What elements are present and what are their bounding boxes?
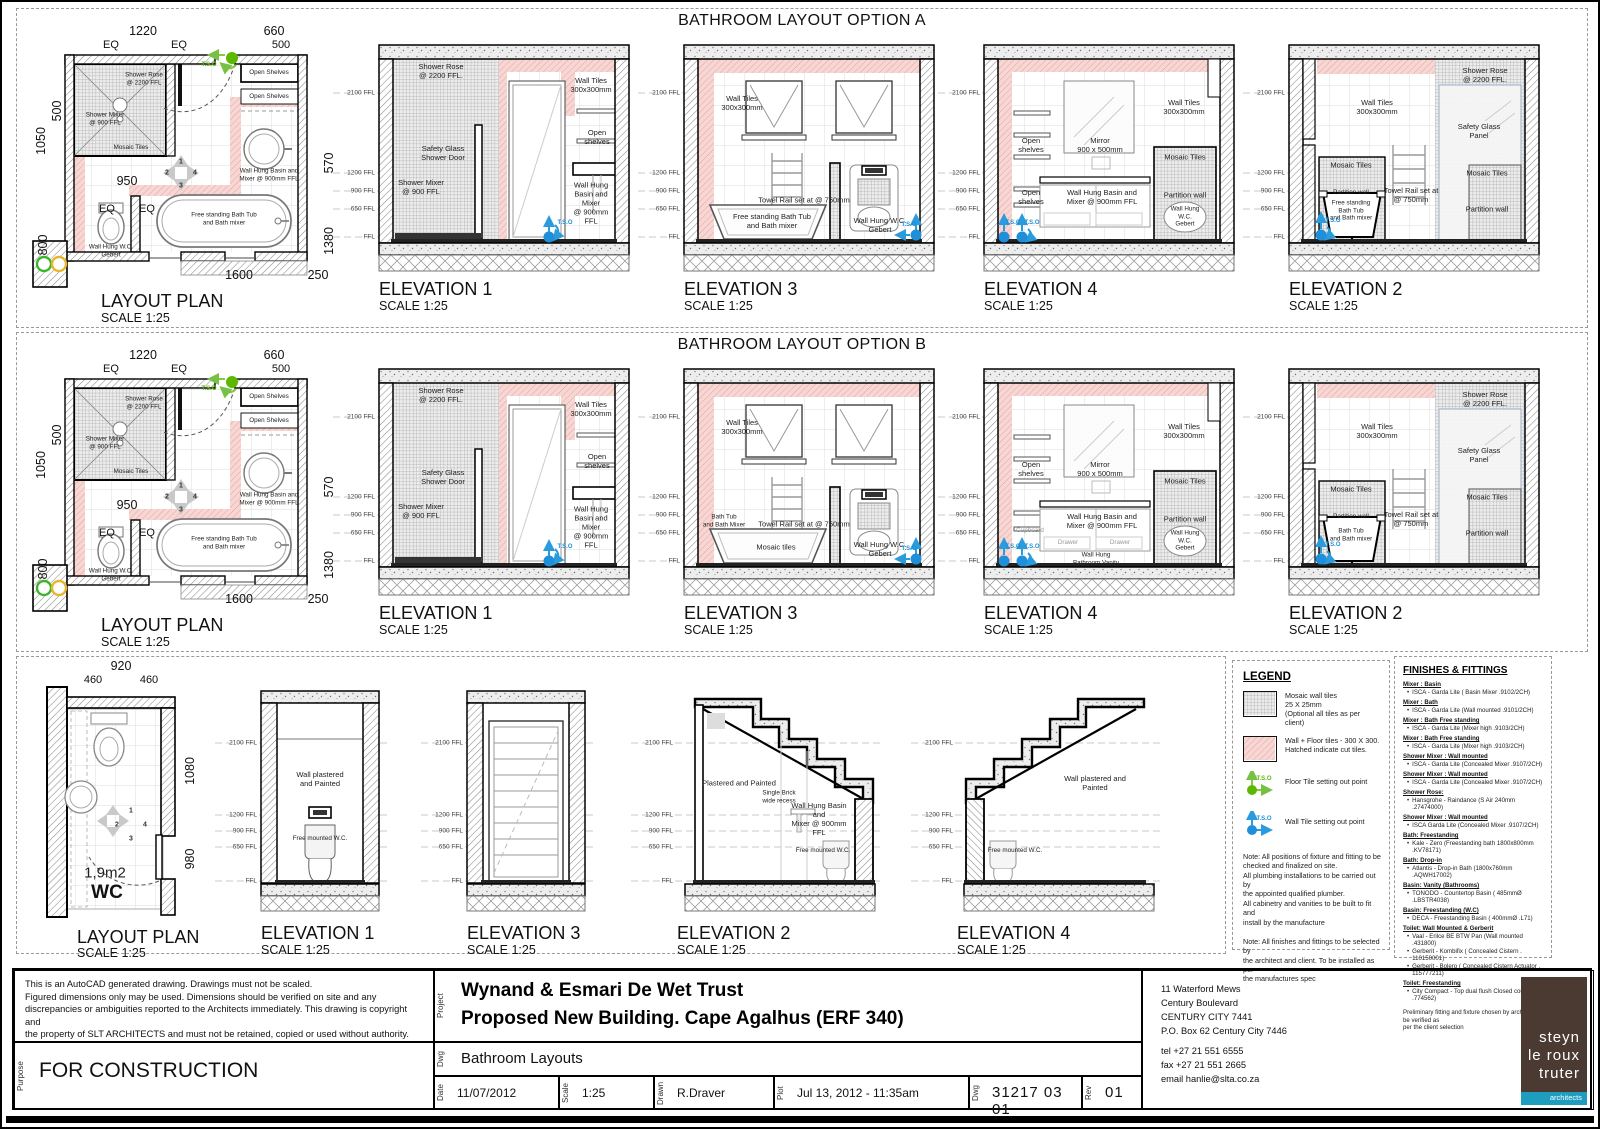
level-label: 900 FFL xyxy=(636,188,680,195)
dwg-title-value: Bathroom Layouts xyxy=(435,1043,1141,1067)
view-caption: ELEVATION 4 xyxy=(957,923,1070,944)
dim: 800 xyxy=(36,235,50,256)
finishes-item-heading: Mixer : Bath Free standing xyxy=(1403,735,1545,742)
finishes-item-line: •Gerberit - Kombifix ( Concealed Cistern… xyxy=(1407,948,1547,962)
level-label: 2100 FFL xyxy=(213,740,257,747)
dim: 980 xyxy=(183,849,197,870)
view-scale: SCALE 1:25 xyxy=(77,946,146,960)
tso-label: T.S.O xyxy=(1325,218,1340,224)
finishes-item-line: •Kale - Zero (Freestanding bath 1800x800… xyxy=(1407,840,1547,854)
level-label: 2100 FFL xyxy=(636,90,680,97)
level-label: 650 FFL xyxy=(909,844,953,851)
date-label: Date xyxy=(436,1079,449,1107)
level-label: 1200 FFL xyxy=(1241,494,1285,501)
finishes-item-heading: Basin: Freestanding (W.C) xyxy=(1403,907,1545,914)
purpose-label: Purpose xyxy=(16,1045,29,1107)
dim: 1380 xyxy=(322,227,336,255)
dim: 250 xyxy=(308,592,329,606)
tso-label: T.S.O xyxy=(557,544,572,550)
address-cell: 11 Waterford Mews Century Boulevard CENT… xyxy=(1142,970,1594,1110)
legend-item-text: Wall + Floor tiles - 300 X 300. Hatched … xyxy=(1285,736,1379,754)
tso-label: T.S.O xyxy=(557,220,572,226)
compass-number: 4 xyxy=(193,170,197,177)
level-label: 1200 FFL xyxy=(213,812,257,819)
wc-plan-drawing xyxy=(35,685,235,921)
level-label: FFL xyxy=(936,558,980,565)
rev-cell: Rev 01 xyxy=(1082,1076,1142,1110)
level-label: 900 FFL xyxy=(1241,512,1285,519)
compass-number: 2 xyxy=(165,494,169,501)
view-scale: SCALE 1:25 xyxy=(684,299,753,313)
level-label: 1200 FFL xyxy=(636,494,680,501)
dim: 660 xyxy=(264,24,285,38)
level-label: FFL xyxy=(1241,558,1285,565)
dim: 460 xyxy=(140,674,158,686)
compass-number: 3 xyxy=(129,836,133,843)
dim: 500 xyxy=(50,425,64,446)
logo-line-2: le roux xyxy=(1528,1047,1580,1064)
finishes-item-text: ISCA - Garda Lite (Mixer high .9103/2CH) xyxy=(1412,743,1524,750)
level-label: FFL xyxy=(629,878,673,885)
option-a-panel: BATHROOM LAYOUT OPTION A xyxy=(16,8,1588,328)
wc-name-label: WC xyxy=(91,882,123,904)
dwg-title-cell: Dwg Bathroom Layouts xyxy=(434,1042,1142,1076)
finishes-item-text: DECA - Freestanding Basin ( 400mmØ .L71) xyxy=(1412,915,1533,922)
elevation-3-view: 2100 FFL 1200 FFL 900 FFL 650 FFL FFL Wa… xyxy=(684,369,934,595)
wc-panel: 920 460 460 1080 980 1 2 3 4 1,9m2 WC LA… xyxy=(16,656,1226,954)
tso-label: T.S.O xyxy=(201,62,216,68)
level-label: 900 FFL xyxy=(629,828,673,835)
legend-title: LEGEND xyxy=(1243,671,1389,683)
dim: 920 xyxy=(111,659,132,673)
finishes-item-text: Gerberit - Kombifix ( Concealed Cistern … xyxy=(1412,948,1547,962)
level-label: FFL xyxy=(419,878,463,885)
elevation-4-drawing xyxy=(984,369,1234,595)
level-label: 650 FFL xyxy=(629,844,673,851)
compass-number: 2 xyxy=(165,170,169,177)
finishes-item-heading: Bath: Freestanding xyxy=(1403,832,1545,839)
finishes-item-line: •TONODO - Countertop Basin ( 485mmØ .LBS… xyxy=(1407,890,1547,904)
finishes-item-heading: Shower Mixer : Wall mounted xyxy=(1403,814,1545,821)
view-scale: SCALE 1:25 xyxy=(1289,299,1358,313)
finishes-item-heading: Shower Mixer : Wall mounted xyxy=(1403,753,1545,760)
level-label: 900 FFL xyxy=(936,512,980,519)
view-scale: SCALE 1:25 xyxy=(1289,623,1358,637)
tso-label: T.S.O xyxy=(1024,544,1039,550)
elevation-3-drawing xyxy=(684,369,934,595)
title-block: This is an AutoCAD generated drawing. Dr… xyxy=(12,968,1592,1110)
view-caption: ELEVATION 2 xyxy=(677,923,790,944)
level-label: 900 FFL xyxy=(331,188,375,195)
legend-item-wall-tso: T.S.O Wall Tile setting out point xyxy=(1243,811,1381,842)
finishes-item-heading: Toilet: Wall Mounted & Gerberit xyxy=(1403,925,1545,932)
logo-line-1: steyn xyxy=(1539,1029,1580,1046)
level-label: FFL xyxy=(213,878,257,885)
level-label: 650 FFL xyxy=(636,206,680,213)
view-caption: ELEVATION 4 xyxy=(984,603,1097,624)
view-scale: SCALE 1:25 xyxy=(984,299,1053,313)
wc-elevation-3-view: 2100 FFL 1200 FFL 900 FFL 650 FFL FFL EL… xyxy=(467,691,585,919)
level-label: 900 FFL xyxy=(936,188,980,195)
wc-layout-plan-view: 920 460 460 1080 980 1 2 3 4 1,9m2 WC LA… xyxy=(35,661,245,953)
view-scale: SCALE 1:25 xyxy=(379,299,448,313)
elevation-1-view: 2100 FFL 1200 FFL 900 FFL 650 FFL FFL Sh… xyxy=(379,45,629,271)
level-label: 900 FFL xyxy=(213,828,257,835)
tile-swatch-icon xyxy=(1243,736,1277,762)
level-label: 1200 FFL xyxy=(909,812,953,819)
wc-area-label: 1,9m2 xyxy=(84,865,126,882)
finishes-item-line: •Atlantis - Drop-in Bath (1800x760mm .AQ… xyxy=(1407,865,1547,879)
level-label: 1200 FFL xyxy=(1241,170,1285,177)
finishes-item-heading: Shower Rose: xyxy=(1403,789,1545,796)
drawn-label: Drawn xyxy=(656,1079,669,1107)
legend-item-floor-tso: T.S.O Floor Tile setting out point xyxy=(1243,771,1381,802)
dim: 660 xyxy=(264,348,285,362)
finishes-item-line: •ISCA - Garda Lite (Mixer high .9103/2CH… xyxy=(1407,725,1547,732)
finishes-item-heading: Mixer : Basin xyxy=(1403,681,1545,688)
view-scale: SCALE 1:25 xyxy=(101,311,170,325)
level-label: 2100 FFL xyxy=(936,90,980,97)
dwgno-cell: Dwg 31217 03 01 xyxy=(969,1076,1082,1110)
finishes-item-line: •ISCA - Garda Lite (Concealed Mixer .910… xyxy=(1407,779,1547,786)
logo-line-3: truter xyxy=(1539,1065,1580,1082)
view-caption: ELEVATION 1 xyxy=(261,923,374,944)
legend-item-text: Wall Tile setting out point xyxy=(1285,817,1365,826)
level-label: 2100 FFL xyxy=(636,414,680,421)
layout-plan-drawing xyxy=(31,45,341,295)
view-caption: LAYOUT PLAN xyxy=(101,291,223,312)
elevation-3-view: 2100 FFL 1200 FFL 900 FFL 650 FFL FFL Wa… xyxy=(684,45,934,271)
logo-architects-bar: architects xyxy=(1521,1092,1587,1105)
dim: 1380 xyxy=(322,551,336,579)
level-label: FFL xyxy=(331,234,375,241)
finishes-item-heading: Mixer : Bath Free standing xyxy=(1403,717,1545,724)
view-scale: SCALE 1:25 xyxy=(957,943,1026,957)
view-caption: ELEVATION 1 xyxy=(379,279,492,300)
dwgno-label: Dwg xyxy=(971,1079,984,1107)
purpose-value: FOR CONSTRUCTION xyxy=(15,1043,433,1083)
dim: EQ xyxy=(103,39,119,51)
level-label: FFL xyxy=(331,558,375,565)
level-label: 900 FFL xyxy=(419,828,463,835)
scale-label: Scale xyxy=(561,1079,574,1107)
legend-item-tiles: Wall + Floor tiles - 300 X 300. Hatched … xyxy=(1243,736,1381,762)
level-label: 1200 FFL xyxy=(936,170,980,177)
drawn-cell: Drawn R.Draver xyxy=(654,1076,774,1110)
level-label: 650 FFL xyxy=(936,206,980,213)
compass-number: 1 xyxy=(179,483,183,490)
compass-number: 4 xyxy=(193,494,197,501)
elevation-2-view: 2100 FFL 1200 FFL 900 FFL 650 FFL FFL Sh… xyxy=(1289,45,1539,271)
finishes-item-heading: Basin: Vanity (Bathrooms) xyxy=(1403,882,1545,889)
option-section: BATHROOM LAYOUT OPTION A xyxy=(17,9,1587,327)
dim: EQ xyxy=(171,39,187,51)
level-label: 650 FFL xyxy=(936,530,980,537)
tso-label: T.S.O xyxy=(1325,542,1340,548)
drawn-value: R.Draver xyxy=(655,1077,773,1100)
layout-plan-view: 1220 EQ EQ 660 500 1050 500 800 570 1380… xyxy=(31,347,341,651)
plot-cell: Plot Jul 13, 2012 - 11:35am xyxy=(774,1076,969,1110)
finishes-item-text: Hansgrohe - Raindance (S Air 240mm .2747… xyxy=(1412,797,1547,811)
level-label: 900 FFL xyxy=(636,512,680,519)
view-scale: SCALE 1:25 xyxy=(684,623,753,637)
wc-elevation-3-drawing xyxy=(467,691,585,915)
level-label: FFL xyxy=(636,558,680,565)
dim: 800 xyxy=(36,559,50,580)
level-label: 2100 FFL xyxy=(331,414,375,421)
architect-logo: steyn le roux truter architects xyxy=(1521,977,1587,1105)
compass-number: 4 xyxy=(143,822,147,829)
dim: EQ xyxy=(171,363,187,375)
finishes-item-heading: Bath: Drop-in xyxy=(1403,857,1545,864)
view-caption: LAYOUT PLAN xyxy=(77,927,199,948)
legend-item-mosaic: Mosaic wall tiles 25 X 25mm (Optional al… xyxy=(1243,691,1381,727)
level-label: 650 FFL xyxy=(1241,530,1285,537)
view-caption: ELEVATION 2 xyxy=(1289,279,1402,300)
elevation-2-view: 2100 FFL 1200 FFL 900 FFL 650 FFL FFL Sh… xyxy=(1289,369,1539,595)
compass-number: 2 xyxy=(115,822,119,829)
drawing-sheet: BATHROOM LAYOUT OPTION A xyxy=(0,0,1600,1129)
project-label: Project xyxy=(436,973,449,1039)
wc-elevation-4-drawing xyxy=(957,691,1162,915)
level-label: 650 FFL xyxy=(331,206,375,213)
project-line-1: Wynand & Esmari De Wet Trust xyxy=(435,971,1141,1005)
tso-label: T.S.O xyxy=(1256,776,1271,782)
finishes-panel: FINISHES & FITTINGS Mixer : Basin•ISCA -… xyxy=(1394,656,1552,958)
compass-number: 1 xyxy=(129,808,133,815)
elevation-1-drawing xyxy=(379,45,629,271)
level-label: 900 FFL xyxy=(331,512,375,519)
dim: 1600 xyxy=(225,592,253,606)
tso-label: T.S.O xyxy=(1005,544,1020,550)
rev-label: Rev xyxy=(1084,1079,1097,1107)
dim: 1050 xyxy=(34,127,48,155)
dim: 1080 xyxy=(183,757,197,785)
purpose-cell: Purpose FOR CONSTRUCTION xyxy=(14,1042,434,1110)
dim: 1050 xyxy=(34,451,48,479)
view-scale: SCALE 1:25 xyxy=(984,623,1053,637)
dim: EQ xyxy=(99,203,115,215)
layout-plan-view: 1220 EQ EQ 660 500 1050 500 800 570 1380… xyxy=(31,23,341,327)
dim: 500 xyxy=(50,101,64,122)
project-cell: Project Wynand & Esmari De Wet Trust Pro… xyxy=(434,970,1142,1042)
view-caption: LAYOUT PLAN xyxy=(101,615,223,636)
view-scale: SCALE 1:25 xyxy=(379,623,448,637)
view-caption: ELEVATION 1 xyxy=(379,603,492,624)
finishes-item-text: ISCA Garda Lite (Concealed Mixer .9107/2… xyxy=(1412,822,1538,829)
mosaic-swatch-icon xyxy=(1243,691,1277,717)
dim: 1220 xyxy=(129,24,157,38)
dwgno-value: 31217 03 01 xyxy=(970,1077,1081,1118)
level-label: 2100 FFL xyxy=(629,740,673,747)
level-label: 900 FFL xyxy=(909,828,953,835)
option-section: BATHROOM LAYOUT OPTION B xyxy=(17,333,1587,651)
level-label: 1200 FFL xyxy=(331,170,375,177)
level-label: FFL xyxy=(1241,234,1285,241)
scale-cell: Scale 1:25 xyxy=(559,1076,654,1110)
view-scale: SCALE 1:25 xyxy=(101,635,170,649)
plot-label: Plot xyxy=(776,1079,789,1107)
elevation-2-drawing xyxy=(1289,369,1539,595)
date-value: 11/07/2012 xyxy=(435,1077,558,1100)
tso-label: T.S.O xyxy=(1024,220,1039,226)
compass-number: 3 xyxy=(179,183,183,190)
finishes-item-line: •ISCA - Garda Lite (Wall mounted .9101/2… xyxy=(1407,707,1547,714)
level-label: 2100 FFL xyxy=(1241,90,1285,97)
finishes-item-heading: Mixer : Bath xyxy=(1403,699,1545,706)
tso-label: T.S.O xyxy=(901,222,916,228)
level-label: 650 FFL xyxy=(331,530,375,537)
dim: 1600 xyxy=(225,268,253,282)
dim: 250 xyxy=(308,268,329,282)
finishes-item-line: •ISCA - Garda Lite (Mixer high .9103/2CH… xyxy=(1407,743,1547,750)
finishes-item-line: •Hansgrohe - Raindance (S Air 240mm .274… xyxy=(1407,797,1547,811)
compass-number: 1 xyxy=(179,159,183,166)
sheet-bottom-border xyxy=(6,1116,1594,1123)
level-label: 650 FFL xyxy=(213,844,257,851)
dim: 500 xyxy=(272,39,290,51)
dim: 500 xyxy=(272,363,290,375)
logo-line-4: architects xyxy=(1550,1093,1582,1102)
view-scale: SCALE 1:25 xyxy=(467,943,536,957)
legend-item-text: Floor Tile setting out point xyxy=(1285,777,1367,786)
finishes-item-text: Vaal - Erilce BE BTW Pan (Wall mounted .… xyxy=(1412,933,1547,947)
date-cell: Date 11/07/2012 xyxy=(434,1076,559,1110)
view-caption: ELEVATION 4 xyxy=(984,279,1097,300)
finishes-item-line: •Vaal - Erilce BE BTW Pan (Wall mounted … xyxy=(1407,933,1547,947)
dim: 460 xyxy=(84,674,102,686)
elevation-3-drawing xyxy=(684,45,934,271)
level-label: 2100 FFL xyxy=(936,414,980,421)
layout-plan-drawing xyxy=(31,369,341,619)
wc-elevation-2-view: 2100 FFL 1200 FFL 900 FFL 650 FFL FFL Pl… xyxy=(677,691,882,919)
tso-label: T.S.O xyxy=(1005,220,1020,226)
level-label: 1200 FFL xyxy=(331,494,375,501)
dim: EQ xyxy=(139,527,155,539)
finishes-item-text: TONODO - Countertop Basin ( 485mmØ .LBST… xyxy=(1412,890,1547,904)
view-scale: SCALE 1:25 xyxy=(677,943,746,957)
finishes-item-text: ISCA - Garda Lite (Concealed Mixer .9107… xyxy=(1412,761,1542,768)
wc-elevation-2-drawing xyxy=(677,691,882,915)
finishes-item-text: Atlantis - Drop-in Bath (1800x760mm .AQW… xyxy=(1412,865,1547,879)
legend-item-text: Mosaic wall tiles 25 X 25mm (Optional al… xyxy=(1285,691,1381,727)
level-label: 650 FFL xyxy=(419,844,463,851)
level-label: FFL xyxy=(936,234,980,241)
elevation-1-view: 2100 FFL 1200 FFL 900 FFL 650 FFL FFL Sh… xyxy=(379,369,629,595)
disclaimer-cell: This is an AutoCAD generated drawing. Dr… xyxy=(14,970,434,1042)
finishes-item-line: •ISCA - Garda Lite (Concealed Mixer .910… xyxy=(1407,761,1547,768)
floor-tso-icon: T.S.O xyxy=(1243,771,1277,802)
level-label: FFL xyxy=(909,878,953,885)
level-label: 1200 FFL xyxy=(419,812,463,819)
view-caption: ELEVATION 3 xyxy=(684,603,797,624)
finishes-item-text: ISCA - Garda Lite (Wall mounted .9101/2C… xyxy=(1412,707,1533,714)
finishes-item-text: ISCA - Garda Lite (Concealed Mixer .9107… xyxy=(1412,779,1542,786)
level-label: 650 FFL xyxy=(1241,206,1285,213)
elevation-4-drawing xyxy=(984,45,1234,271)
wc-elevation-1-view: 2100 FFL 1200 FFL 900 FFL 650 FFL FFL Wa… xyxy=(261,691,379,919)
finishes-item-text: ISCA - Garda Lite ( Basin Mixer .9102/2C… xyxy=(1412,689,1530,696)
dim: 1220 xyxy=(129,348,157,362)
level-label: FFL xyxy=(636,234,680,241)
wc-elevation-4-view: 2100 FFL 1200 FFL 900 FFL 650 FFL FFL Wa… xyxy=(957,691,1162,919)
dim: 950 xyxy=(117,498,138,512)
finishes-list: Mixer : Basin•ISCA - Garda Lite ( Basin … xyxy=(1395,681,1551,1002)
wall-tso-icon: T.S.O xyxy=(1243,811,1277,842)
dim: EQ xyxy=(99,527,115,539)
tso-label: T.S.O xyxy=(901,546,916,552)
view-scale: SCALE 1:25 xyxy=(261,943,330,957)
finishes-item-line: •ISCA Garda Lite (Concealed Mixer .9107/… xyxy=(1407,822,1547,829)
elevation-2-drawing xyxy=(1289,45,1539,271)
disclaimer-text: This is an AutoCAD generated drawing. Dr… xyxy=(15,971,433,1048)
elevation-1-drawing xyxy=(379,369,629,595)
dim: EQ xyxy=(103,363,119,375)
level-label: 1200 FFL xyxy=(936,494,980,501)
tso-label: T.S.O xyxy=(1256,816,1271,822)
finishes-item-line: •ISCA - Garda Lite ( Basin Mixer .9102/2… xyxy=(1407,689,1547,696)
wc-elevation-1-drawing xyxy=(261,691,379,915)
tso-label: T.S.O xyxy=(201,386,216,392)
dim: 950 xyxy=(117,174,138,188)
finishes-item-heading: Shower Mixer : Wall mounted xyxy=(1403,771,1545,778)
level-label: 900 FFL xyxy=(1241,188,1285,195)
level-label: 1200 FFL xyxy=(636,170,680,177)
level-label: 650 FFL xyxy=(636,530,680,537)
legend-note: Note: All positions of fixture and fitti… xyxy=(1243,852,1381,927)
plot-value: Jul 13, 2012 - 11:35am xyxy=(775,1077,968,1100)
view-caption: ELEVATION 3 xyxy=(684,279,797,300)
finishes-item-text: Kale - Zero (Freestanding bath 1800x800m… xyxy=(1412,840,1547,854)
dim: EQ xyxy=(139,203,155,215)
level-label: 2100 FFL xyxy=(419,740,463,747)
elevation-4-view: 2100 FFL 1200 FFL 900 FFL 650 FFL FFL Wa… xyxy=(984,45,1234,271)
compass-number: 3 xyxy=(179,507,183,514)
project-line-2: Proposed New Building. Cape Agalhus (ERF… xyxy=(435,1005,1141,1033)
finishes-item-line: •DECA - Freestanding Basin ( 400mmØ .L71… xyxy=(1407,915,1547,922)
dwg-label: Dwg xyxy=(436,1045,449,1073)
level-label: 2100 FFL xyxy=(331,90,375,97)
finishes-title: FINISHES & FITTINGS xyxy=(1403,665,1551,676)
view-caption: ELEVATION 3 xyxy=(467,923,580,944)
level-label: 2100 FFL xyxy=(909,740,953,747)
finishes-item-text: ISCA - Garda Lite (Mixer high .9103/2CH) xyxy=(1412,725,1524,732)
option-b-panel: BATHROOM LAYOUT OPTION B xyxy=(16,332,1588,652)
view-caption: ELEVATION 2 xyxy=(1289,603,1402,624)
level-label: 1200 FFL xyxy=(629,812,673,819)
level-label: 2100 FFL xyxy=(1241,414,1285,421)
elevation-4-view: 2100 FFL 1200 FFL 900 FFL 650 FFL FFL Wa… xyxy=(984,369,1234,595)
legend-panel: LEGEND Mosaic wall tiles 25 X 25mm (Opti… xyxy=(1232,660,1390,950)
